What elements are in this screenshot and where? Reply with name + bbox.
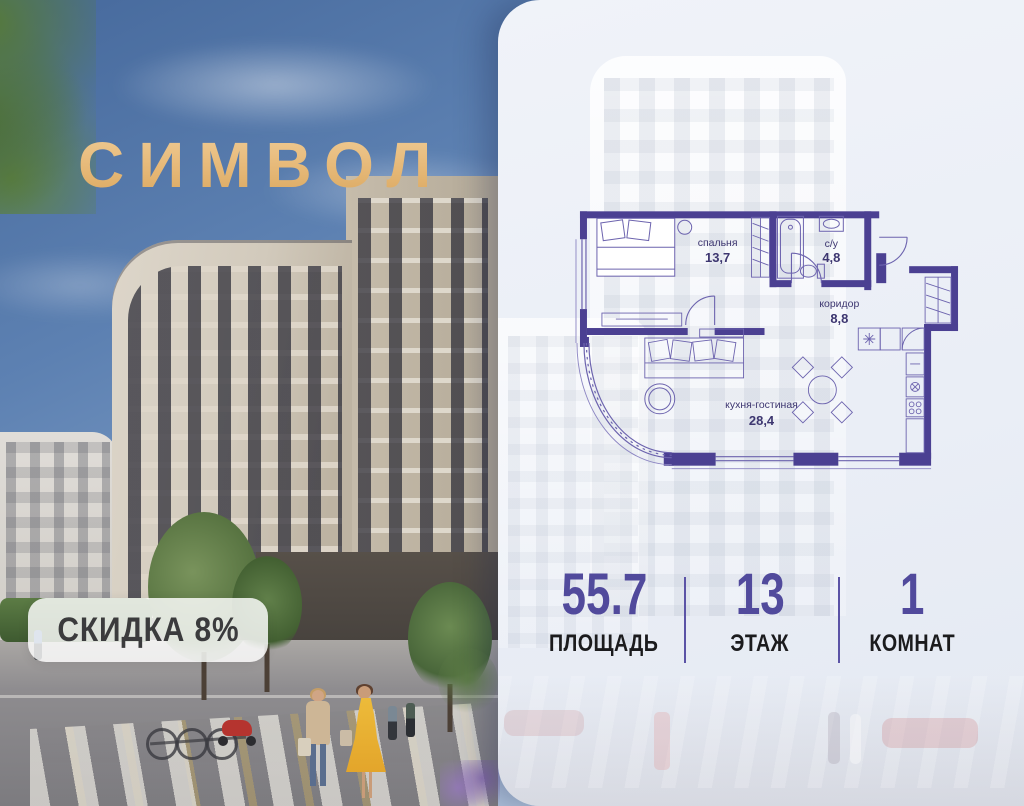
plan-dresser — [602, 313, 682, 326]
ghost-car — [882, 718, 978, 748]
discount-badge: СКИДКА 8% — [28, 598, 268, 662]
stat-floor: 13 ЭТАЖ — [685, 565, 835, 658]
plan-dining-set — [792, 357, 852, 423]
plan-bed — [597, 218, 675, 276]
plan-washer-cabinets — [858, 328, 924, 350]
building-right — [346, 176, 498, 616]
room-area-corridor: 8,8 — [830, 311, 848, 326]
pedestrian — [388, 706, 397, 740]
room-area-kitchen-living: 28,4 — [749, 413, 775, 428]
project-logo: СИМВОЛ — [78, 128, 445, 202]
ghost-pedestrian — [828, 712, 840, 764]
stat-area: 55.7 ПЛОЩАДЬ — [529, 565, 679, 658]
stat-rooms-value: 1 — [900, 565, 925, 626]
ghost-street-scene — [498, 676, 1024, 806]
red-scooter — [218, 720, 256, 746]
stat-rooms-label: КОМНАТ — [869, 630, 955, 658]
apartment-panel: спальня 13,7 с/у 4,8 коридор 8,8 кухня-г… — [498, 0, 1024, 806]
stat-floor-value: 13 — [735, 565, 784, 626]
room-name-bedroom: спальня — [698, 238, 738, 249]
apartment-listing-card[interactable]: СИМВОЛ СКИДКА 8% — [0, 0, 1024, 806]
ghost-car — [504, 710, 584, 736]
stat-floor-label: ЭТАЖ — [731, 630, 789, 658]
plan-coffee-table — [645, 384, 675, 414]
pedestrian-beige-jacket — [304, 690, 334, 804]
room-area-bathroom: 4,8 — [822, 250, 840, 265]
room-name-corridor: коридор — [819, 299, 859, 310]
flowers — [440, 760, 500, 806]
plan-kitchen-units — [906, 353, 924, 453]
pedestrian-yellow-dress — [344, 686, 390, 804]
room-area-bedroom: 13,7 — [705, 250, 730, 265]
discount-badge-label: СКИДКА 8% — [57, 611, 239, 650]
apartment-stats: 55.7 ПЛОЩАДЬ 13 ЭТАЖ 1 КОМНАТ — [498, 565, 1024, 675]
room-name-kitchen-living: кухня-гостиная — [725, 400, 798, 411]
bush — [438, 648, 498, 714]
stat-area-label: ПЛОЩАДЬ — [549, 630, 658, 658]
plan-bathtub — [777, 216, 803, 278]
room-name-bathroom: с/у — [825, 239, 839, 250]
stat-area-value: 55.7 — [561, 565, 647, 626]
plan-stool — [678, 220, 692, 234]
plan-sink — [819, 216, 843, 231]
pedestrian — [406, 703, 415, 737]
plan-sofa — [645, 329, 744, 378]
floor-plan: спальня 13,7 с/у 4,8 коридор 8,8 кухня-г… — [572, 202, 966, 476]
curb-line — [0, 695, 498, 698]
ghost-pedestrian — [850, 714, 861, 764]
stat-rooms: 1 КОМНАТ — [837, 565, 987, 658]
ghost-pedestrian — [654, 712, 670, 770]
cloud — [110, 40, 440, 130]
